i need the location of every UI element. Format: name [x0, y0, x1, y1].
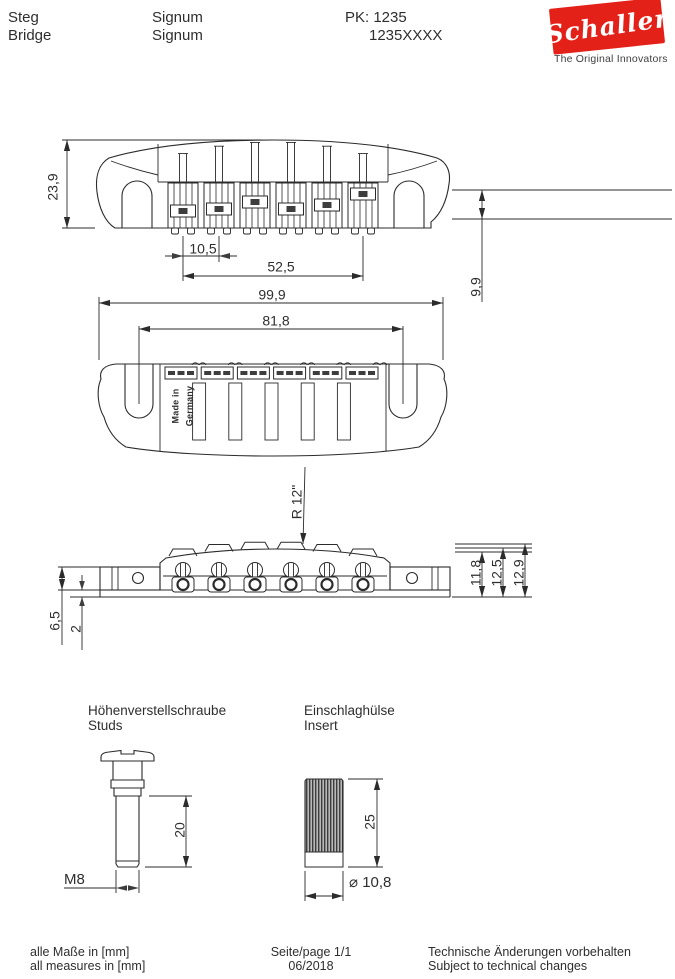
side-height-3-dim: 12,9	[510, 559, 528, 586]
front-height-dim: 23,9	[44, 173, 62, 200]
model-name-1: Signum	[152, 9, 203, 28]
technical-drawing	[0, 0, 675, 979]
made-in-text: Made in	[170, 389, 181, 424]
logo-tagline: The Original Innovators	[554, 53, 668, 66]
stud-length-dim: 20	[171, 822, 189, 838]
product-name-en: Bridge	[8, 27, 51, 46]
article-number: 1235XXXX	[369, 27, 442, 46]
radius-dim: R 12"	[288, 485, 306, 520]
germany-text: Germany	[184, 386, 195, 426]
insert-label-en: Insert	[304, 718, 338, 735]
string-spacing-dim: 10,5	[189, 240, 216, 258]
revision-date: 06/2018	[288, 959, 333, 975]
front-view	[62, 140, 672, 302]
tab-height-dim: 6,5	[46, 611, 64, 630]
change-notice-en: Subject to technical changes	[428, 959, 587, 975]
insert-diameter-dim: ⌀ 10,8	[349, 874, 391, 893]
side-height-2-dim: 12,5	[488, 559, 506, 586]
plate-thickness-dim: 2	[67, 625, 85, 633]
stud-spacing-dim: 81,8	[262, 312, 289, 330]
insert-length-dim: 25	[361, 814, 379, 830]
stud-label-en: Studs	[88, 718, 123, 735]
units-note-en: all measures in [mm]	[30, 959, 145, 975]
schaller-logo-text: Schaller	[544, 3, 671, 49]
datasheet-page: Steg Bridge Signum Signum PK: 1235 1235X…	[0, 0, 675, 979]
front-right-height-dim: 9,9	[467, 277, 485, 296]
model-name-2: Signum	[152, 27, 203, 46]
product-name-de: Steg	[8, 9, 39, 28]
stud-thread-dim: M8	[64, 871, 85, 890]
overall-length-dim: 99,9	[258, 286, 285, 304]
side-height-1-dim: 11,8	[467, 560, 485, 586]
pk-number: PK: 1235	[345, 9, 407, 28]
e-to-e-spacing-dim: 52,5	[267, 258, 294, 276]
